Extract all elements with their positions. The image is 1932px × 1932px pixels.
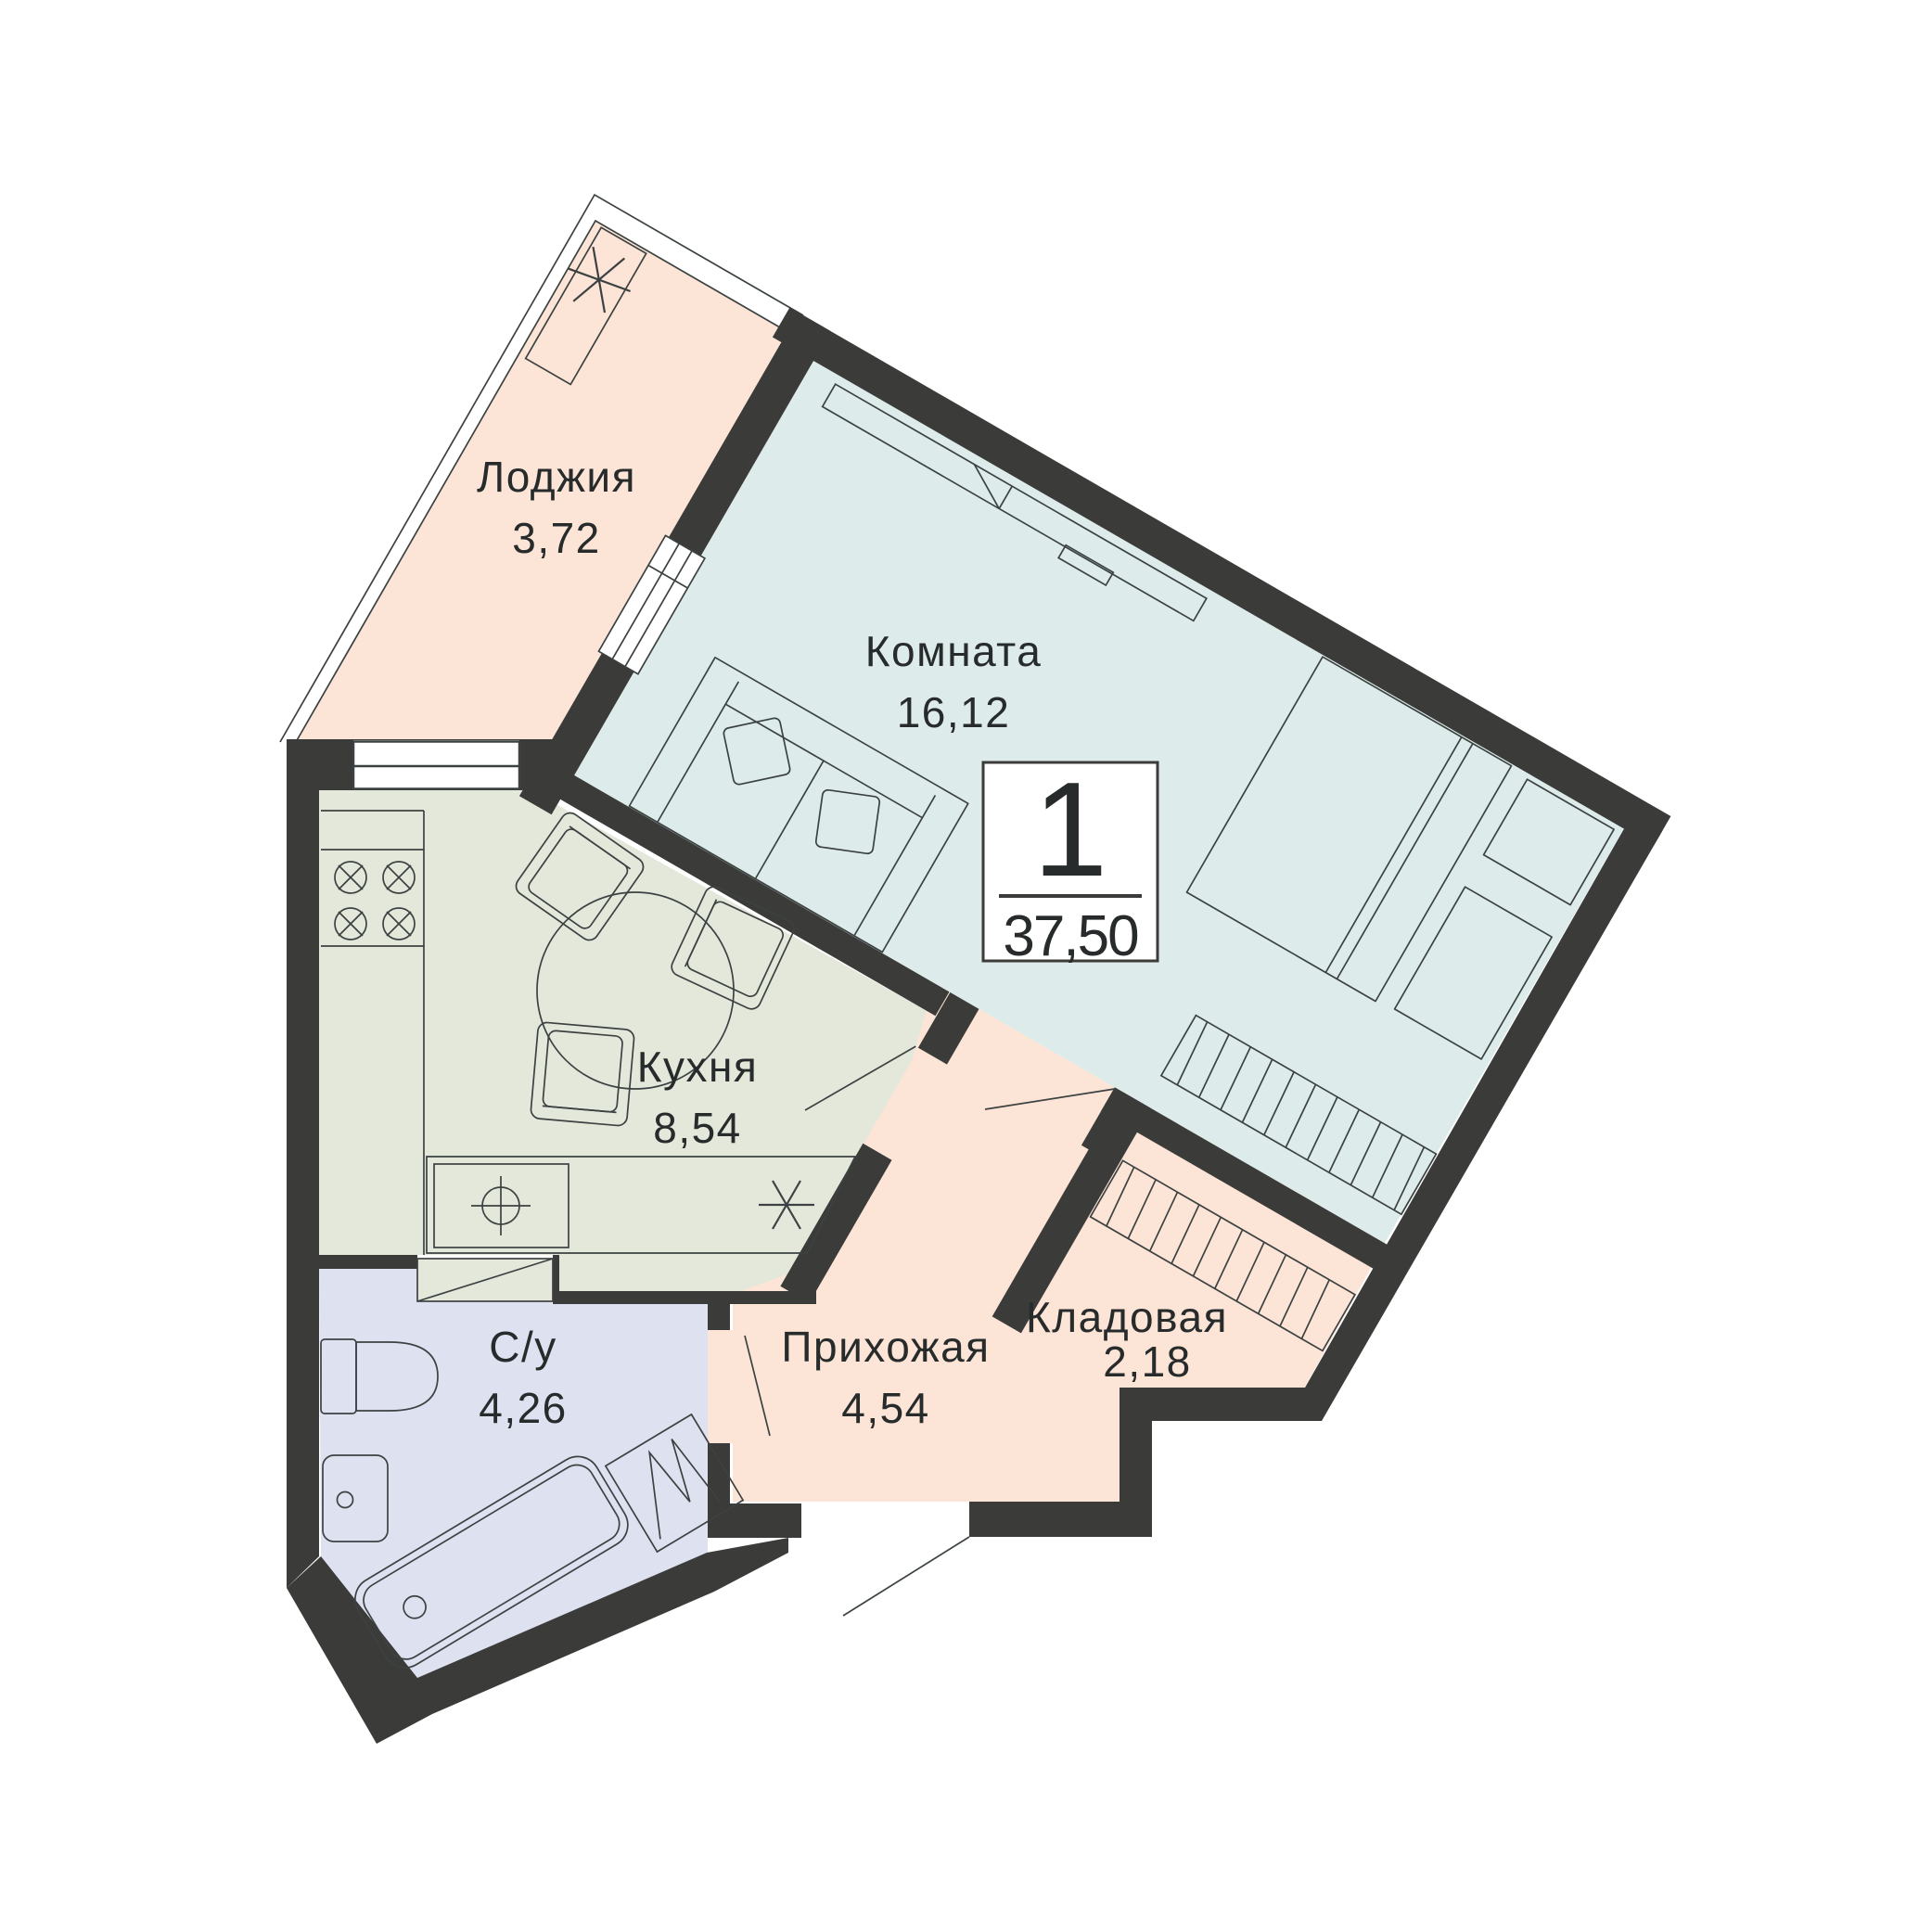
svg-text:С/у: С/у <box>489 1323 557 1371</box>
svg-text:3,72: 3,72 <box>512 514 601 562</box>
svg-text:Прихожая: Прихожая <box>781 1323 990 1371</box>
svg-text:Кладовая: Кладовая <box>1026 1293 1228 1341</box>
svg-text:Комната: Комната <box>865 627 1043 675</box>
svg-text:2,18: 2,18 <box>1103 1337 1192 1386</box>
svg-text:Лоджия: Лоджия <box>477 453 636 501</box>
svg-text:37,50: 37,50 <box>1003 904 1138 968</box>
svg-text:Кухня: Кухня <box>637 1043 759 1091</box>
svg-text:16,12: 16,12 <box>897 688 1011 736</box>
svg-text:1: 1 <box>1033 754 1108 904</box>
svg-text:4,54: 4,54 <box>841 1384 930 1432</box>
svg-text:8,54: 8,54 <box>653 1104 742 1152</box>
svg-text:4,26: 4,26 <box>479 1384 568 1432</box>
